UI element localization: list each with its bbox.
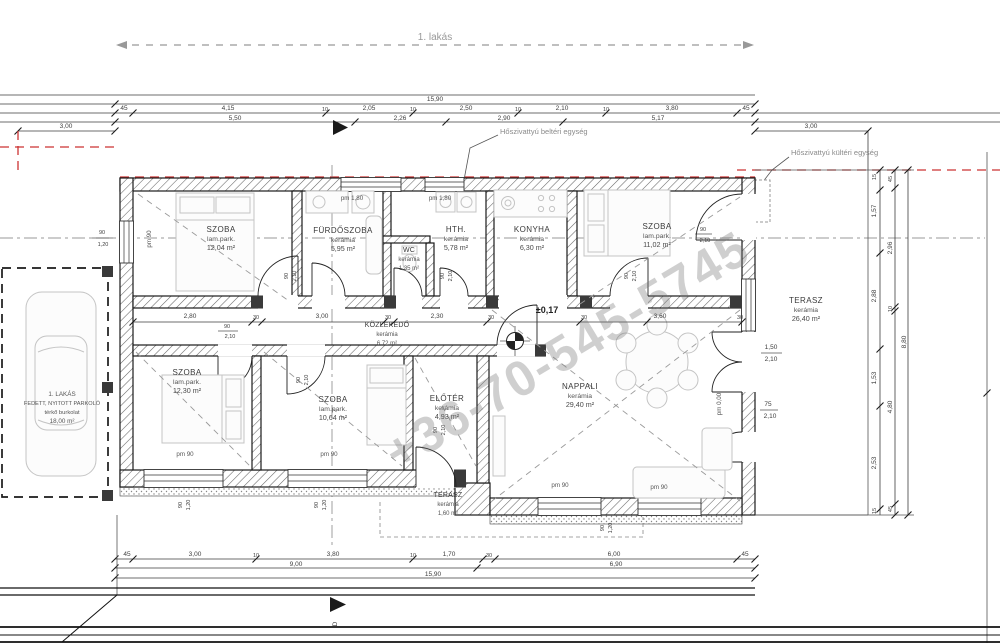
door-size: 2,10 xyxy=(292,271,298,282)
sill-label: pm 0,00 xyxy=(716,392,723,415)
parking-line2: FEDETT, NYITOTT PARKOLÓ xyxy=(24,400,101,407)
dim: 2,80 xyxy=(184,313,197,320)
sill-label: pm 90 xyxy=(551,482,569,489)
dim: 2,96 xyxy=(887,241,894,254)
room-szoba-2: SZOBA lam.park. 11,02 m² xyxy=(642,222,671,249)
section-letter: D xyxy=(332,621,339,626)
section-marker-bottom xyxy=(330,597,346,612)
dim: 2,26 xyxy=(394,115,407,122)
floor-plan-drawing: 1. lakás 15,90 45 4,15 10 2,05 10 2,50 1… xyxy=(0,0,1000,643)
door-size: 2,10 xyxy=(448,271,454,282)
floor-plan-page: 1. lakás 15,90 45 4,15 10 2,05 10 2,50 1… xyxy=(0,0,1000,643)
door-size: 2,10 xyxy=(764,413,777,420)
room-area: 6,30 m² xyxy=(520,243,545,252)
dim: 10 xyxy=(322,107,328,113)
apartment-label: 1. lakás xyxy=(418,32,452,43)
dim: 30 xyxy=(253,315,259,321)
room-name: KONYHA xyxy=(514,225,550,234)
dim: 6,00 xyxy=(608,551,621,558)
dim: 2,05 xyxy=(363,105,376,112)
window-size: 90 xyxy=(600,525,606,531)
dim-offset-right: 3,00 xyxy=(805,123,818,130)
room-name: KÖZLEKEDŐ xyxy=(365,320,410,329)
room-nappali: NAPPALI kerámia 29,40 m² xyxy=(562,382,598,409)
dim: 5,50 xyxy=(229,115,242,122)
dim: 2,90 xyxy=(498,115,511,122)
dim: 30 xyxy=(488,315,494,321)
dim: 2,50 xyxy=(460,105,473,112)
dim: 45 xyxy=(741,551,749,558)
dim: 3,00 xyxy=(316,313,329,320)
room-area: 11,02 m² xyxy=(643,240,671,249)
room-material: kerámia xyxy=(331,237,355,244)
room-area: 26,40 m² xyxy=(792,314,821,323)
apartment-span-arrow: 1. lakás xyxy=(116,32,754,49)
dim: 2,30 xyxy=(431,313,444,320)
window-size: 1,20 xyxy=(98,242,109,248)
room-material: kerámia xyxy=(437,502,459,508)
room-szoba-1: SZOBA lam.park. 12,04 m² xyxy=(206,225,235,252)
window-size: 1,20 xyxy=(322,500,328,511)
dim: 2,88 xyxy=(871,289,878,302)
window-size: 90 xyxy=(314,502,320,508)
door-size: 90 xyxy=(224,324,230,330)
room-name: SZOBA xyxy=(172,368,201,377)
dim: 10 xyxy=(410,107,416,113)
note-hp-indoor: Hőszivattyú beltéri egység xyxy=(500,127,588,136)
dim: 2,10 xyxy=(556,105,569,112)
sill-label: pm 1,80 xyxy=(429,195,452,202)
window-size: 90 xyxy=(178,502,184,508)
window-size: 90 xyxy=(99,230,105,236)
dim: 45 xyxy=(123,551,131,558)
dim: 6,90 xyxy=(610,561,623,568)
note-hp-outdoor: Hőszivattyú kültéri egység xyxy=(791,148,878,157)
room-name: WC xyxy=(403,247,415,254)
dim: 10 xyxy=(603,107,609,113)
door-size: 1,50 xyxy=(765,344,778,351)
room-material: kerámia xyxy=(398,257,420,263)
car-top-view xyxy=(26,292,96,476)
room-area: 12,04 m² xyxy=(207,243,236,252)
room-area: 5,78 m² xyxy=(444,243,469,252)
room-hth: HTH. kerámia 5,78 m² xyxy=(444,225,469,252)
dim: 1,57 xyxy=(871,204,878,217)
room-area: 1,60 m² xyxy=(438,511,458,517)
room-material: kerámia xyxy=(376,332,398,338)
room-kozlekedo: KÖZLEKEDŐ kerámia 6,72 m² xyxy=(365,320,410,347)
dim: 5,17 xyxy=(652,115,665,122)
dim: 45 xyxy=(120,105,128,112)
door-size: 90 xyxy=(284,273,290,279)
parking-line4: 18,00 m² xyxy=(50,418,75,425)
window-size: 1,20 xyxy=(608,523,614,534)
room-terasz: TERASZ kerámia 26,40 m² xyxy=(789,296,823,323)
door-size: 90 xyxy=(440,273,446,279)
sill-label: pm 90 xyxy=(650,484,668,491)
room-area: 10,64 m² xyxy=(319,413,348,422)
dim: 10 xyxy=(515,107,521,113)
dim: 30 xyxy=(737,315,743,321)
dim: 30 xyxy=(385,315,391,321)
parking-line1: 1. LAKÁS xyxy=(48,389,75,398)
parking-line3: térkő burkolat xyxy=(44,410,80,416)
room-area: 12,30 m² xyxy=(173,386,202,395)
room-material: lam.park. xyxy=(207,236,235,243)
dim: 9,00 xyxy=(290,561,303,568)
parking-area: 1. LAKÁS FEDETT, NYITOTT PARKOLÓ térkő b… xyxy=(2,266,113,501)
dim: 10 xyxy=(888,306,894,312)
level-mark-value: ±0,17 xyxy=(536,305,558,315)
room-name: SZOBA xyxy=(318,395,347,404)
room-area: 29,40 m² xyxy=(566,400,595,409)
dim: 1,53 xyxy=(871,371,878,384)
dim: 45 xyxy=(888,506,894,512)
door-size: 2,10 xyxy=(225,334,236,340)
room-szoba-3: SZOBA lam.park. 12,30 m² xyxy=(172,368,201,395)
dim-bottom-total: 15,90 xyxy=(425,571,442,578)
dim: 3,00 xyxy=(189,551,202,558)
door-size: 2,10 xyxy=(765,356,778,363)
room-material: kerámia xyxy=(444,236,468,243)
bottom-dimension-strip: 45 3,00 10 3,80 10 1,70 30 6,00 45 9,00 … xyxy=(112,551,759,582)
sill-label: pm 90 xyxy=(146,230,153,248)
dim-offset-left: 3,00 xyxy=(60,123,73,130)
room-material: lam.park. xyxy=(643,233,671,240)
room-furdoszoba: FÜRDŐSZOBA kerámia 5,95 m² xyxy=(313,226,373,253)
dim: 45 xyxy=(888,176,894,182)
room-konyha: KONYHA kerámia 6,30 m² xyxy=(514,225,550,252)
door-size: 2,10 xyxy=(304,375,310,386)
dim: 3,80 xyxy=(327,551,340,558)
dim: 1,70 xyxy=(443,551,456,558)
dim: 45 xyxy=(742,105,750,112)
dim-right-total: 8,80 xyxy=(901,335,908,348)
dim: 10 xyxy=(410,553,416,559)
dim: 4,80 xyxy=(887,400,894,413)
room-szoba-4: SZOBA lam.park. 10,64 m² xyxy=(318,395,347,422)
sill-label: pm 90 xyxy=(176,451,194,458)
room-name: SZOBA xyxy=(206,225,235,234)
room-material: lam.park. xyxy=(319,406,347,413)
room-name: TERASZ xyxy=(789,296,823,305)
room-name: SZOBA xyxy=(642,222,671,231)
dim: 2,53 xyxy=(871,456,878,469)
room-area: 6,72 m² xyxy=(377,341,397,347)
dim-top-total: 15,90 xyxy=(427,96,444,103)
door-size: 90 xyxy=(624,273,630,279)
terrace-outline xyxy=(755,170,868,515)
right-dimension-chains: 15 1,57 2,88 1,53 2,53 15 45 2,96 10 4,8… xyxy=(755,152,991,643)
site-lines: D xyxy=(0,515,1000,642)
dim: 10 xyxy=(253,553,259,559)
room-area: 5,95 m² xyxy=(331,244,356,253)
room-material: kerámia xyxy=(520,236,544,243)
dim: 3,80 xyxy=(666,105,679,112)
room-name: NAPPALI xyxy=(562,382,598,391)
window-size: 1,20 xyxy=(186,500,192,511)
room-material: lam.park. xyxy=(173,379,201,386)
door-size: 75 xyxy=(764,401,772,408)
sill-label: pm 90 xyxy=(320,451,338,458)
room-name: FÜRDŐSZOBA xyxy=(313,226,373,235)
sill-label: pm 1,80 xyxy=(341,195,364,202)
room-name: TERASZ xyxy=(434,492,463,499)
dim: 15 xyxy=(872,174,878,180)
door-size: 90 xyxy=(296,377,302,383)
dim: 15 xyxy=(872,508,878,514)
room-material: kerámia xyxy=(794,307,818,314)
room-material: kerámia xyxy=(568,393,592,400)
door-size: 90 xyxy=(700,227,706,233)
room-name: HTH. xyxy=(446,225,466,234)
room-area: 1,35 m² xyxy=(399,266,419,272)
dim: 30 xyxy=(486,553,492,559)
dim: 4,15 xyxy=(222,105,235,112)
